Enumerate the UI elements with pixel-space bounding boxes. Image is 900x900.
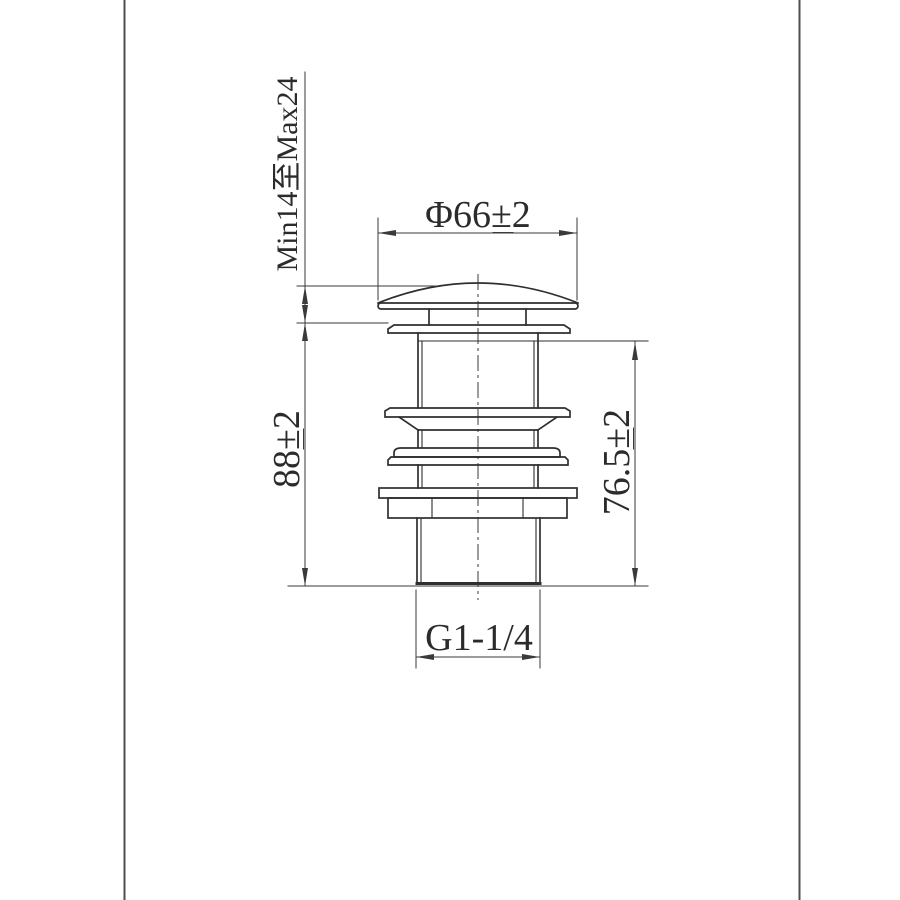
dim-thread-size: G1-1/4 xyxy=(416,590,540,668)
arrowhead-right xyxy=(559,230,577,236)
arrowhead-down xyxy=(302,568,308,586)
gasket-cone-left xyxy=(399,417,418,430)
dim-mount-range: Min14至Max24 xyxy=(271,72,437,586)
dim-label-thread-size: G1-1/4 xyxy=(425,617,533,659)
drawing-sheet: Φ66±2 Min14至Max24 88±2 76.5±2 G1-1/4 xyxy=(0,0,900,900)
arrowhead-down xyxy=(632,568,638,586)
arrowhead-left xyxy=(378,230,396,236)
mounting-plate xyxy=(388,325,570,333)
dim-body-height: 88±2 xyxy=(266,323,308,586)
arrowhead-down xyxy=(302,305,308,323)
dim-label-mount-range: Min14至Max24 xyxy=(271,77,304,272)
sheet-frame xyxy=(125,0,800,900)
arrowhead-up xyxy=(302,286,308,304)
dim-shank-height: 76.5±2 xyxy=(596,342,638,586)
dim-label-cap-diameter: Φ66±2 xyxy=(425,194,531,236)
technical-drawing-canvas: Φ66±2 Min14至Max24 88±2 76.5±2 G1-1/4 xyxy=(0,0,900,900)
dim-label-body-height: 88±2 xyxy=(266,410,308,488)
washer-ring xyxy=(394,448,560,457)
arrowhead-up xyxy=(302,323,308,341)
gasket-cone-right xyxy=(538,417,557,430)
arrowhead-up xyxy=(632,342,638,360)
dim-label-shank-height: 76.5±2 xyxy=(596,409,638,515)
